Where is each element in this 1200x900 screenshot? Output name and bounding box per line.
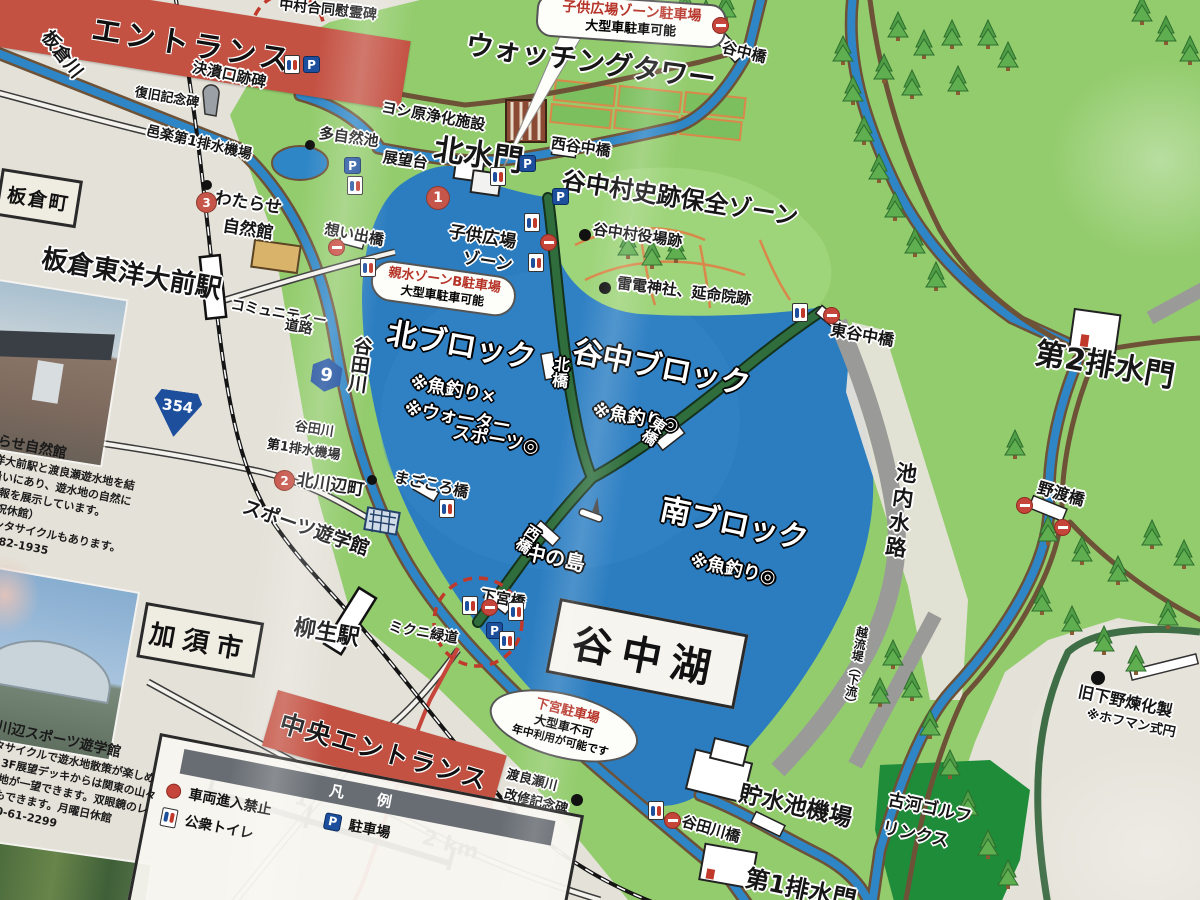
marker-3: 3 <box>196 192 217 213</box>
toilet-icon <box>499 631 515 650</box>
parking-icon: P <box>303 56 320 73</box>
route-354-number: 354 <box>161 395 195 417</box>
marker-3-number: 3 <box>202 196 210 210</box>
legend-toilet-label: 公衆トイレ <box>183 811 256 844</box>
toilet-icon <box>648 801 664 820</box>
parking-legend-icon: P <box>323 812 343 832</box>
no-entry-icon <box>1054 519 1071 536</box>
toilet-legend-icon <box>159 806 178 828</box>
toilet-icon <box>528 253 544 272</box>
parking-icon: P <box>519 155 536 172</box>
kita-bridge-label: 北橋 <box>549 355 569 389</box>
no-entry-icon <box>712 17 729 34</box>
no-entry-icon <box>823 307 840 324</box>
no-entry-icon <box>1016 497 1033 514</box>
marker-2-number: 2 <box>280 474 288 488</box>
itakura-town-label: 板倉町 <box>6 180 72 217</box>
toilet-icon <box>490 167 506 186</box>
toilet-icon <box>792 303 808 322</box>
toilet-icon <box>508 602 524 621</box>
marker-2: 2 <box>274 470 295 491</box>
toilet-icon <box>524 213 540 232</box>
toilet-icon <box>462 596 478 615</box>
route-9-number: 9 <box>319 364 334 387</box>
legend-parking-label: 駐車場 <box>347 815 392 843</box>
kazo-city-label: 加須市 <box>147 613 254 667</box>
toilet-icon <box>284 55 300 74</box>
marker-1: 1 <box>426 186 450 210</box>
toilet-icon <box>347 176 363 195</box>
no-entry-icon <box>664 812 681 829</box>
no-entry-legend-icon <box>165 782 183 800</box>
marker-1-number: 1 <box>433 190 443 206</box>
no-entry-icon <box>540 234 557 251</box>
toilet-icon <box>439 499 455 518</box>
map-signboard-photo: エントランス 中央エントランス 板倉町 加須市 谷中湖 子供広場ゾーン駐車場 大… <box>0 0 1200 900</box>
parking-icon: P <box>552 188 569 205</box>
no-entry-icon <box>328 239 345 256</box>
parking-icon: P <box>344 157 361 174</box>
toilet-icon <box>360 258 376 277</box>
tashizen-pond <box>272 146 328 180</box>
no-entry-icon <box>481 599 498 616</box>
